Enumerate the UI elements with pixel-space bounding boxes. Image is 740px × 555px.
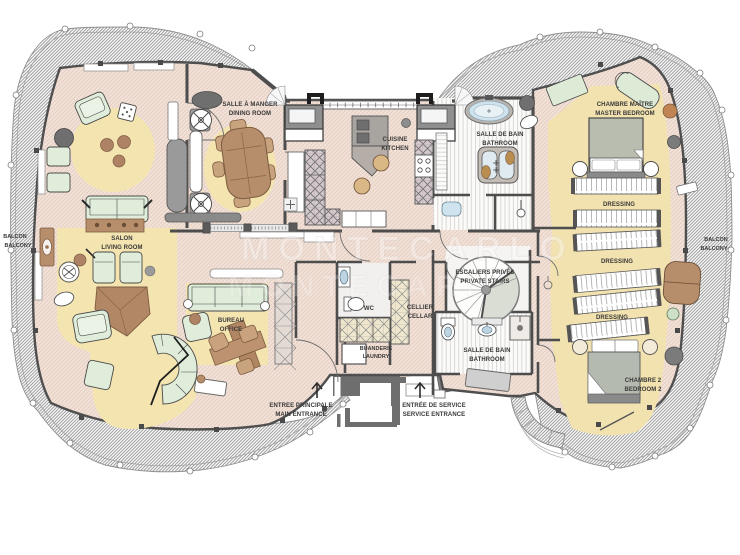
svg-text:DINING ROOM: DINING ROOM bbox=[229, 111, 271, 117]
svg-text:DRESSING: DRESSING bbox=[601, 259, 633, 265]
svg-text:MONTECARLO: MONTECARLO bbox=[241, 230, 575, 268]
svg-text:SALON: SALON bbox=[111, 236, 132, 242]
svg-text:KITCHEN: KITCHEN bbox=[381, 146, 408, 152]
svg-text:BUANDERIE: BUANDERIE bbox=[360, 346, 393, 352]
svg-text:CELLIER: CELLIER bbox=[407, 305, 434, 311]
svg-text:WC: WC bbox=[364, 306, 375, 312]
svg-text:OFFICE: OFFICE bbox=[220, 327, 242, 333]
svg-text:BUREAU: BUREAU bbox=[218, 318, 244, 324]
svg-text:MAIN ENTRANCE: MAIN ENTRANCE bbox=[275, 412, 326, 418]
svg-text:BALCON: BALCON bbox=[704, 237, 727, 243]
svg-text:BALCON: BALCON bbox=[3, 234, 26, 240]
svg-text:ENTRÉE DE SERVICE: ENTRÉE DE SERVICE bbox=[402, 401, 466, 409]
svg-text:SALLE À MANGER: SALLE À MANGER bbox=[222, 101, 278, 108]
svg-text:ENTREE PRINCIPALE: ENTREE PRINCIPALE bbox=[269, 403, 332, 409]
svg-text:CUISINE: CUISINE bbox=[383, 137, 408, 143]
svg-text:CHAMBRE 2: CHAMBRE 2 bbox=[625, 378, 662, 384]
svg-text:LAUNDRY: LAUNDRY bbox=[363, 354, 390, 360]
svg-text:SALLE DE BAIN: SALLE DE BAIN bbox=[476, 132, 523, 138]
svg-text:BALCONY: BALCONY bbox=[700, 246, 727, 252]
svg-text:SERVICE ENTRANCE: SERVICE ENTRANCE bbox=[403, 412, 466, 418]
svg-text:DRESSING: DRESSING bbox=[596, 315, 628, 321]
svg-text:DRESSING: DRESSING bbox=[603, 202, 635, 208]
svg-text:SALLE DE BAIN: SALLE DE BAIN bbox=[463, 348, 510, 354]
svg-text:CELLAR: CELLAR bbox=[408, 314, 433, 320]
svg-text:MONTECARL: MONTECARL bbox=[228, 270, 492, 303]
svg-text:BATHROOM: BATHROOM bbox=[482, 141, 518, 147]
svg-text:MASTER BEDROOM: MASTER BEDROOM bbox=[595, 111, 654, 117]
svg-text:CHAMBRE MAÎTRE: CHAMBRE MAÎTRE bbox=[597, 100, 653, 108]
svg-text:LIVING ROOM: LIVING ROOM bbox=[101, 245, 142, 251]
svg-text:BEDROOM 2: BEDROOM 2 bbox=[624, 387, 662, 393]
svg-text:BALCONY: BALCONY bbox=[4, 243, 31, 249]
svg-text:BATHROOM: BATHROOM bbox=[469, 357, 505, 363]
